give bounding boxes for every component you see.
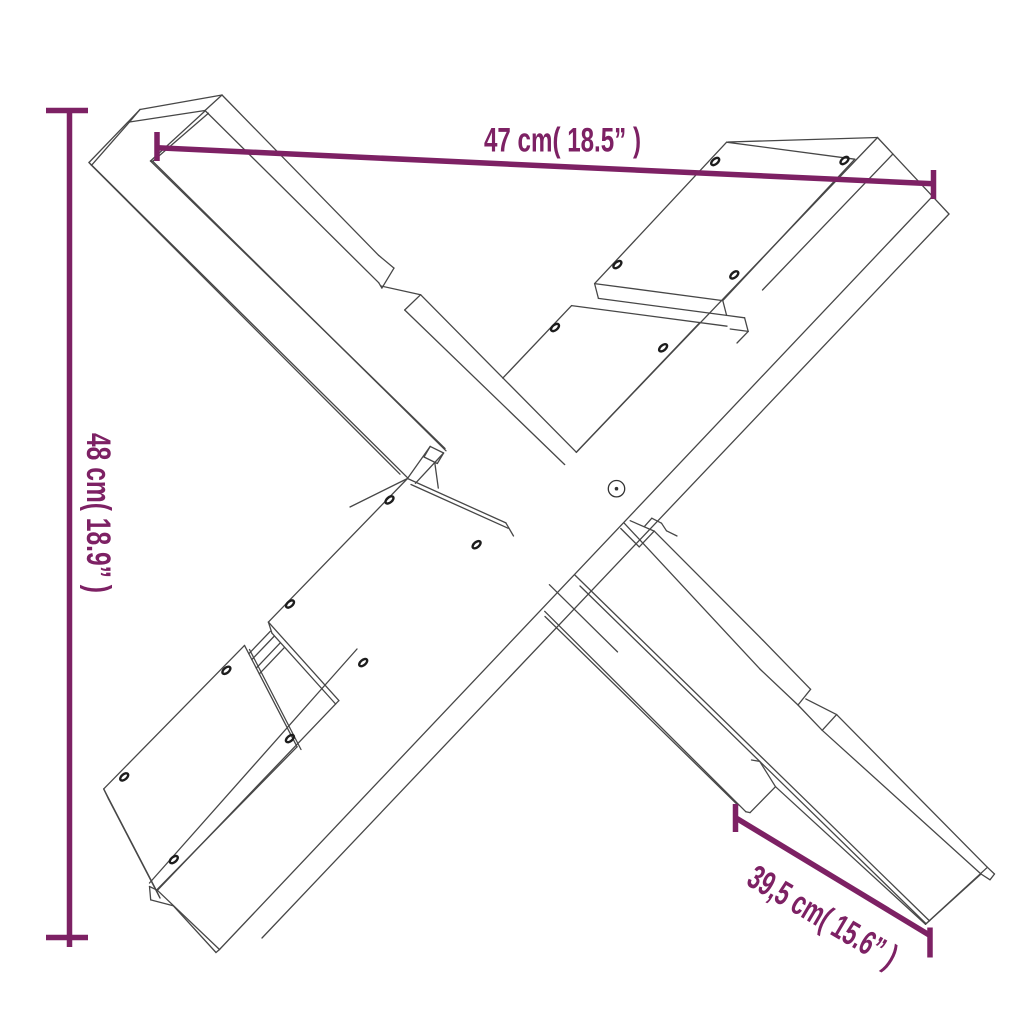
svg-text:48 cm( 18.9” ): 48 cm( 18.9” ): [79, 433, 117, 593]
svg-text:47 cm( 18.5” ): 47 cm( 18.5” ): [484, 122, 641, 160]
